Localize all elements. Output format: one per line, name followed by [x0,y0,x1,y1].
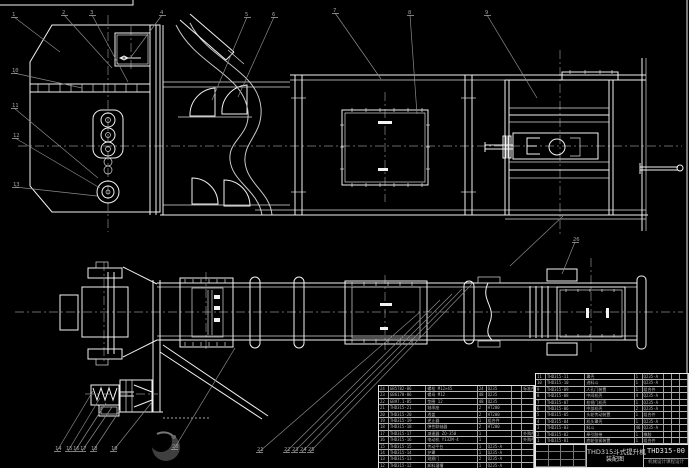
bom-cell: GB5782-86 [389,386,427,391]
casing-flange-b [461,75,476,215]
bom-cell: 2 [478,456,487,461]
bom-cell [512,424,522,429]
bom-cell: 18 [379,424,389,429]
bom-cell [664,380,672,385]
bom-cell: THD315-16 [389,437,427,442]
bom-cell: THD315-03 [546,425,585,430]
bom-cell [522,405,534,410]
cad-drawing-canvas: 1234567891011121314151617181920212223242… [0,0,689,468]
bom-cell [672,438,680,443]
bom-cell [672,432,680,437]
bom-cell: 7 [536,400,546,405]
bom-cell: 卸料溜槽 [426,463,477,468]
plan-bolted-panel-left [180,278,233,347]
bom-cell: 传动平台 [426,444,477,449]
bom-cell [680,438,688,443]
bom-cell: Q235 [487,386,513,391]
bom-cell: 2 [478,405,487,410]
bom-cell: Q235-A [643,393,665,398]
bom-cell: 减速器 ZQ-350 [426,431,477,436]
bom-cell: 1 [635,432,643,437]
bom-cell: 20 [379,412,389,417]
bom-cell: 标准件 [522,386,534,391]
leader-line [131,15,162,57]
bom-cell: 1 [635,374,643,379]
bom-cell: 13 [379,456,389,461]
leader-line [14,17,60,52]
bom-row: 12THD315-12卸料溜槽1Q235-A [379,463,534,468]
bom-cell: 2 [536,432,546,437]
bom-cell [512,405,522,410]
bom-cell: Q235-A [643,419,665,424]
plan-drive-unit [85,380,158,416]
bom-cell [672,374,680,379]
bom-cell: THD315-15 [389,444,427,449]
bom-cell [680,374,688,379]
bom-cell: THD315-06 [546,406,585,411]
bom-cell: 观察门 [426,456,477,461]
bom-cell: 垫圈 12 [426,399,477,404]
bom-cell: 48 [478,399,487,404]
bom-cell: 中间机壳 [585,393,634,398]
leader-line [410,15,417,114]
bom-cell: Q235-A [643,380,665,385]
bom-cell: 1 [635,380,643,385]
bom-cell: 底轮张紧装置 [585,438,634,443]
bom-cell: 24 [478,386,487,391]
bom-cell: 外购件 [522,437,534,442]
bom-cell: 1 [478,431,487,436]
bom-cell [487,437,513,442]
bom-cell: THD315-01 [546,438,585,443]
bom-cell [512,418,522,423]
bom-cell: 6 [536,406,546,411]
leader-line [14,108,98,178]
bom-table-right: 11THD315-11罩壳1Q235-A10THD315-10进料斗1Q235-… [535,373,689,452]
bom-cell: 电动机 Y132M-4 [426,437,477,442]
bom-cell [522,418,534,423]
bom-cell: THD315-17 [389,431,427,436]
bom-cell [680,400,688,405]
bom-cell [664,406,672,411]
bom-cell [512,437,522,442]
bom-cell [672,412,680,417]
bom-cell [512,412,522,417]
drawing-title: THD315斗式提升机 装配图 [587,445,644,467]
bom-cell [680,432,688,437]
bom-cell: THD315-09 [546,387,585,392]
bom-cell [512,399,522,404]
bom-cell: THD315-18 [389,424,427,429]
bom-cell: 5 [536,412,546,417]
bom-cell [672,400,680,405]
bom-cell: 检视门机壳 [585,400,634,405]
bom-cell: 1 [635,412,643,417]
bom-cell: 1 [635,438,643,443]
bom-cell: 19 [379,418,389,423]
bom-cell: 逆止器 [426,418,477,423]
leader-line [15,138,100,188]
bom-cell: 8 [536,393,546,398]
bom-cell [487,431,513,436]
bom-cell: Q235-A [487,450,513,455]
bom-cell: 1 [536,438,546,443]
bom-cell: THD315-05 [546,412,585,417]
bom-cell: 轴承座 [426,405,477,410]
leader-line [57,391,93,451]
bom-cell: GB6170-86 [389,392,427,397]
bom-cell: 9 [536,387,546,392]
leader-line [64,15,112,68]
bom-cell [664,425,672,430]
bom-cell: HT200 [487,412,513,417]
front-elevation-view [18,14,683,266]
bom-cell: 弹性联轴器 [426,424,477,429]
bom-cell [664,412,672,417]
discharge-spout [180,14,244,64]
bom-cell: THD315-07 [546,400,585,405]
bom-cell [512,431,522,436]
bom-cell: 头轮传动装置 [585,412,634,417]
bom-cell: 48 [478,392,487,397]
bom-cell: 1 [635,387,643,392]
drawing-title-line2: 装配图 [587,456,643,463]
bom-cell: 中部机壳 [585,406,634,411]
bom-cell [522,412,534,417]
bom-cell: 外购件 [522,431,534,436]
drawing-subtitle: 机械设计课程设计 [644,459,688,467]
bom-cell: THD315-12 [389,463,427,468]
plan-bolted-panel-mid [345,281,427,344]
bom-cell: THD315-14 [389,450,427,455]
bom-cell: HT200 [487,424,513,429]
title-block: THD315斗式提升机 装配图 THD315-00 机械设计课程设计 [535,444,689,468]
bom-cell: 护罩 [426,450,477,455]
bom-cell [664,419,672,424]
bom-cell: 1 [478,463,487,468]
bom-cell [672,380,680,385]
bom-cell [512,450,522,455]
bom-table-left: 24GB5782-86螺栓 M12×4524Q235标准件23GB6170-86… [378,385,535,468]
bom-cell [672,406,680,411]
bom-cell: 罩壳 [585,374,634,379]
bom-cell: 组合件 [643,387,665,392]
bom-cell: 组合件 [643,438,665,443]
bom-cell: 人孔门装置 [585,387,634,392]
bom-cell [672,387,680,392]
head-housing [30,25,163,215]
bom-cell: 2 [635,406,643,411]
bom-cell: Q235-A [643,400,665,405]
bom-cell: THD315-02 [546,432,585,437]
bom-cell: GB97.1-85 [389,399,427,404]
bom-cell [680,419,688,424]
bom-cell [522,450,534,455]
bom-cell: 牵引胶带 [585,432,634,437]
bom-cell [680,406,688,411]
bom-cell: 1 [635,400,643,405]
bom-cell: Q235-A [643,406,665,411]
bom-cell: 机头罩壳 [585,419,634,424]
leader-line [487,15,537,98]
bom-cell: Q235-A [487,456,513,461]
bom-cell: Q235-A [643,425,665,430]
bom-cell [664,400,672,405]
bom-cell [522,456,534,461]
platform-hatch [38,84,137,92]
bom-cell: Q235 [487,399,513,404]
bom-cell [522,444,534,449]
bom-cell [522,463,534,468]
bom-cell: THD315-20 [389,412,427,417]
plan-duct [157,283,637,340]
drawing-number: THD315-00 [644,445,688,459]
bom-cell [664,438,672,443]
bom-cell: 17 [379,431,389,436]
bom-cell: 4 [536,419,546,424]
leader-line [212,17,247,100]
bom-cell: 22 [379,399,389,404]
bom-cell: 1 [478,437,487,442]
bom-cell [664,387,672,392]
bom-cell [680,380,688,385]
bom-cell [522,424,534,429]
bom-cell [512,456,522,461]
bom-cell: Q235-A [487,444,513,449]
drawing-number-cell: THD315-00 机械设计课程设计 [644,445,688,467]
bom-cell: 1 [635,419,643,424]
bom-cell: THD315-10 [546,380,585,385]
bom-cell [512,386,522,391]
leader-line [75,403,106,451]
bom-cell: THD315-13 [389,456,427,461]
bom-cell [522,392,534,397]
bom-cell [680,387,688,392]
bom-cell: 11 [536,374,546,379]
bom-cell [672,419,680,424]
bom-cell [512,463,522,468]
bom-cell: 料斗 [585,425,634,430]
bom-cell: Q235 [487,392,513,397]
bom-cell: 21 [379,405,389,410]
bom-cell: 46 [635,425,643,430]
plan-head-box [60,262,157,365]
bom-cell [680,425,688,430]
bom-cell: 1 [478,418,487,423]
bom-cell: Q235-A [487,463,513,468]
bom-cell: 螺母 M12 [426,392,477,397]
bom-cell: THD315-21 [389,405,427,410]
bom-cell [512,392,522,397]
bom-cell: 橡胶 [643,432,665,437]
bom-cell: 1 [478,444,487,449]
bom-cell [664,374,672,379]
bom-cell: 4 [635,393,643,398]
bom-cell [512,444,522,449]
bom-cell: 2 [478,412,487,417]
bom-cell: 3 [536,425,546,430]
leader-line [14,73,82,88]
bom-cell: THD315-08 [546,393,585,398]
leader-line [15,187,97,196]
bom-cell: 14 [379,450,389,455]
bom-cell: 进料斗 [585,380,634,385]
bom-cell: 12 [379,463,389,468]
bom-cell: 透盖 [426,412,477,417]
bom-cell: THD315-04 [546,419,585,424]
bom-cell: 组合件 [487,418,513,423]
leader-line [174,348,235,449]
bom-cell: 螺栓 M12×45 [426,386,477,391]
bom-cell: 组合件 [643,412,665,417]
bom-cell: 15 [379,444,389,449]
bom-cell [680,412,688,417]
bom-cell: THD315-11 [546,374,585,379]
leader-line [238,17,274,97]
bom-cell: HT200 [487,405,513,410]
bom-cell [680,393,688,398]
bom-cell [672,425,680,430]
bom-cell [522,399,534,404]
bom-cell [664,393,672,398]
bom-cell [664,432,672,437]
bom-cell: 10 [536,380,546,385]
bom-cell: THD315-19 [389,418,427,423]
bom-cell: Q235-A [643,374,665,379]
bom-cell: 23 [379,392,389,397]
casing-flange-a [291,75,306,215]
leader-line [335,13,381,79]
bom-cell: 1 [478,450,487,455]
revision-grid [536,445,587,467]
bom-cell: 2 [478,424,487,429]
bom-cell: 24 [379,386,389,391]
boot-section [485,58,683,266]
bom-cell: 16 [379,437,389,442]
bom-cell [672,393,680,398]
